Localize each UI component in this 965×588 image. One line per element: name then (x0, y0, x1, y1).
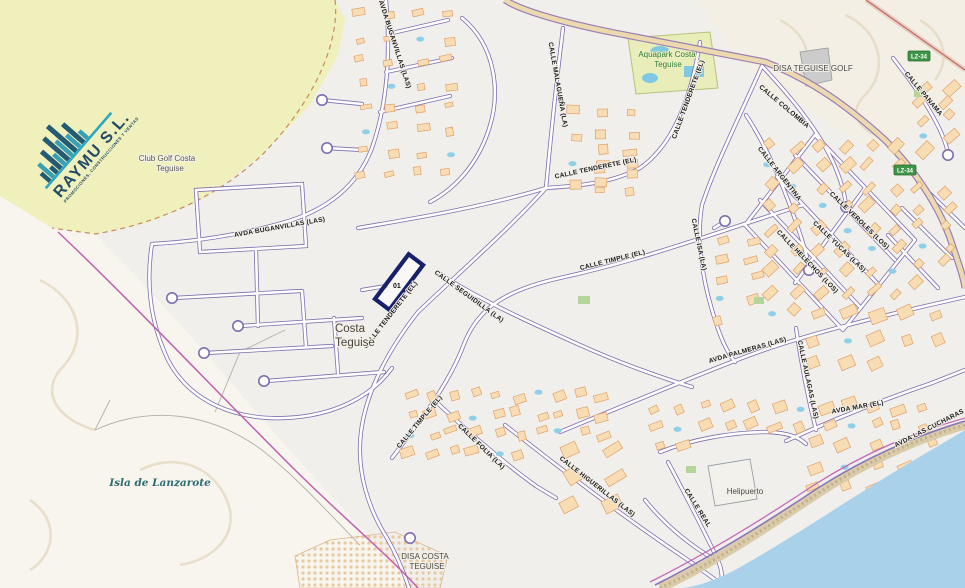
building (627, 170, 637, 178)
place-label: Helipuerto (727, 487, 764, 496)
building (443, 10, 453, 16)
swimming-pool (416, 36, 424, 41)
swimming-pool (848, 423, 856, 428)
swimming-pool (819, 203, 827, 208)
swimming-pool (844, 338, 852, 343)
swimming-pool (797, 407, 805, 412)
road-badge: LZ-34 (908, 51, 930, 61)
building (446, 83, 458, 91)
swimming-pool (919, 133, 927, 138)
swimming-pool (888, 269, 896, 274)
building (445, 37, 456, 46)
place-label: DISA TEGUISE GOLF (773, 64, 853, 73)
building (598, 109, 608, 117)
swimming-pool (716, 296, 724, 301)
building (415, 105, 425, 113)
place-label: Costa (335, 323, 366, 335)
swimming-pool (868, 246, 876, 251)
swimming-pool (569, 161, 577, 166)
parcel-id-label: 01 (393, 283, 401, 290)
building (570, 180, 581, 189)
building (383, 59, 393, 66)
building (595, 187, 604, 192)
place-label: Club Golf Costa (139, 154, 196, 163)
swimming-pool (447, 152, 455, 157)
building (595, 178, 607, 187)
building (572, 134, 582, 141)
swimming-pool (535, 390, 543, 395)
building (360, 78, 367, 86)
swimming-pool (768, 311, 776, 316)
building (510, 405, 521, 416)
building (417, 123, 430, 132)
building (595, 130, 605, 139)
building (567, 105, 580, 114)
building (625, 187, 634, 196)
place-label: Teguise (335, 337, 375, 349)
building (440, 168, 450, 175)
culdesac-bulb (233, 321, 243, 331)
helipad (708, 459, 757, 506)
swimming-pool (469, 415, 477, 420)
building (358, 146, 367, 152)
map-viewport[interactable]: 01 LZ-34LZ-34 AVDA BUGANVILLAS (LAS)AVDA… (0, 0, 965, 588)
culdesac-bulb (167, 293, 177, 303)
building (384, 104, 394, 112)
building (417, 152, 427, 159)
place-label: Aquapark Costa (638, 50, 696, 59)
building (388, 149, 400, 159)
swimming-pool (496, 451, 504, 456)
culdesac-bulb (720, 216, 730, 226)
swimming-pool (919, 243, 927, 248)
swimming-pool (362, 129, 370, 134)
culdesac-bulb (322, 143, 332, 153)
culdesac-bulb (405, 533, 415, 543)
building (445, 127, 454, 136)
building (627, 109, 635, 115)
culdesac-bulb (317, 95, 327, 105)
building (630, 133, 640, 140)
swimming-pool (674, 427, 682, 432)
place-label: Isla de Lanzarote (108, 477, 211, 489)
map-canvas[interactable]: 01 LZ-34LZ-34 AVDA BUGANVILLAS (LAS)AVDA… (0, 0, 965, 588)
building (417, 83, 425, 90)
building (623, 149, 637, 157)
road-badge-text: LZ-34 (897, 168, 914, 174)
place-label: TEGUISE (409, 562, 444, 571)
swimming-pool (554, 428, 562, 433)
place-label: DISA COSTA (401, 552, 449, 561)
place-label: Teguise (156, 164, 184, 173)
culdesac-bulb (199, 348, 209, 358)
building (387, 121, 398, 129)
culdesac-bulb (943, 150, 953, 160)
place-label: Teguise (654, 60, 682, 69)
building (598, 144, 608, 154)
building (450, 390, 460, 401)
road-badge-text: LZ-34 (911, 54, 928, 60)
swimming-pool (388, 84, 396, 89)
swimming-pool (844, 228, 852, 233)
building (413, 167, 421, 176)
culdesac-bulb (259, 376, 269, 386)
building (581, 426, 591, 435)
road-badge: LZ-34 (894, 165, 916, 175)
